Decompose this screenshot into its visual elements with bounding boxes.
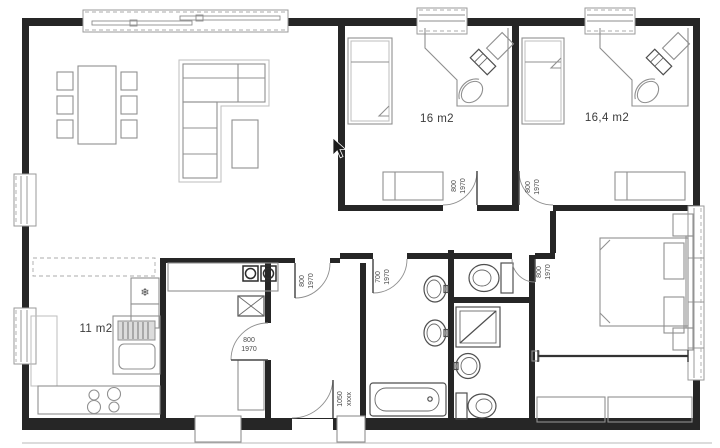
window-living-left xyxy=(14,174,36,226)
wall-corridor-bottom-2 xyxy=(407,253,512,259)
wall-bathroom-wc xyxy=(448,250,454,422)
floor-plan-canvas: ❄ xyxy=(0,0,720,448)
tall-cabinet xyxy=(238,360,264,410)
corner-sofa xyxy=(179,60,269,182)
facade-pier-2 xyxy=(337,416,365,442)
monitor-1 xyxy=(487,33,514,60)
wall-corridor-top-3 xyxy=(553,205,700,211)
door-label: xxxx xyxy=(346,392,353,407)
duct-shaft xyxy=(238,296,264,316)
walls xyxy=(22,18,700,430)
double-bed xyxy=(600,236,693,333)
entry-door-opening xyxy=(292,419,333,430)
door-label: 1970 xyxy=(534,179,541,195)
wall-wc-shower xyxy=(454,297,535,303)
door-bedroom2: 800 1970 xyxy=(519,171,553,205)
door-label: 1970 xyxy=(545,264,552,280)
wall-bedroom1-bedroom2 xyxy=(512,26,519,206)
facade-pier-1 xyxy=(195,416,241,442)
door-label: 1050 xyxy=(337,391,344,407)
wall-pantry-hall-lower xyxy=(265,360,271,422)
corner-desk-2 xyxy=(600,28,689,108)
office-chair-2 xyxy=(630,74,664,108)
dining-chairs xyxy=(57,72,137,138)
kitchen-area-label: 11 m2 xyxy=(79,323,112,335)
stove-counter xyxy=(38,386,160,414)
shower-room-fixtures xyxy=(454,307,500,419)
wall-kitchen-east xyxy=(160,258,166,422)
dresser-1 xyxy=(383,172,443,200)
sink-bowl xyxy=(119,344,155,369)
door-label: 1970 xyxy=(460,178,467,194)
single-bed-2 xyxy=(522,38,564,124)
wall-master-nw xyxy=(550,211,556,253)
monitor-2 xyxy=(663,33,690,60)
hob-burners xyxy=(243,266,276,281)
wall-pantry-hall-upper xyxy=(265,263,271,323)
door-entry: 1050 xxxx xyxy=(292,380,353,418)
closet-rod xyxy=(532,350,688,362)
wall-corridor-bottom-3 xyxy=(535,253,555,259)
door-label: 700 xyxy=(375,271,382,283)
wall-living-bedroom1 xyxy=(338,26,345,206)
dining-table xyxy=(78,66,116,144)
door-label: 1970 xyxy=(241,346,257,353)
wall-hall-top-stub xyxy=(330,258,340,263)
door-label: 800 xyxy=(451,180,458,192)
door-label: 1970 xyxy=(384,269,391,285)
bathroom-fixtures xyxy=(370,276,448,416)
upper-cabinets-dashed xyxy=(33,258,155,276)
floor-plan-drawing: ❄ xyxy=(0,0,720,448)
door-label: 1970 xyxy=(308,273,315,289)
door-label: 800 xyxy=(525,181,532,193)
wall-corridor-top-2 xyxy=(477,205,519,211)
door-bedroom1: 800 1970 xyxy=(443,171,477,205)
wall-corridor-bottom-1 xyxy=(340,253,373,259)
washbasin-1 xyxy=(424,276,448,302)
wall-corridor-top-1 xyxy=(338,205,443,211)
bedroom1-area-label: 16 m2 xyxy=(420,113,454,125)
pantry-fixtures xyxy=(168,263,278,410)
washbasin-3 xyxy=(454,354,480,379)
dresser-2 xyxy=(615,172,685,200)
living-room-furniture xyxy=(57,60,269,182)
snowflake-icon: ❄ xyxy=(140,287,149,299)
toilet-shower-room xyxy=(456,393,496,419)
wc-fixtures xyxy=(469,263,513,293)
coffee-table xyxy=(232,120,258,168)
bedroom2-area-label: 16,4 m2 xyxy=(585,112,629,124)
wall-pantry-top xyxy=(166,258,295,263)
single-bed-1 xyxy=(348,38,392,124)
master-bedroom-furniture xyxy=(532,214,693,422)
door-label: 800 xyxy=(299,275,306,287)
toilet-wc xyxy=(469,263,513,293)
pillow-1 xyxy=(664,243,684,279)
wall-wc-master xyxy=(529,255,535,422)
corner-desk-1 xyxy=(425,28,513,108)
door-label: 800 xyxy=(536,266,543,278)
kitchen-sink-unit xyxy=(113,316,160,374)
window-master-right xyxy=(688,206,704,380)
shower-tray xyxy=(456,307,500,347)
door-bathroom: 700 1970 xyxy=(373,259,407,293)
office-chair-1 xyxy=(454,74,488,108)
bathtub xyxy=(370,383,446,416)
wall-hall-bathroom xyxy=(360,263,366,422)
window-bedroom2 xyxy=(585,8,635,34)
kitchen-fixtures: ❄ xyxy=(31,258,160,414)
door-hall-living: 800 1970 xyxy=(295,263,330,298)
patio-door xyxy=(83,10,288,32)
door-pantry: 800 1970 xyxy=(231,323,268,360)
door-label: 800 xyxy=(243,337,255,344)
washbasin-2 xyxy=(424,320,448,346)
